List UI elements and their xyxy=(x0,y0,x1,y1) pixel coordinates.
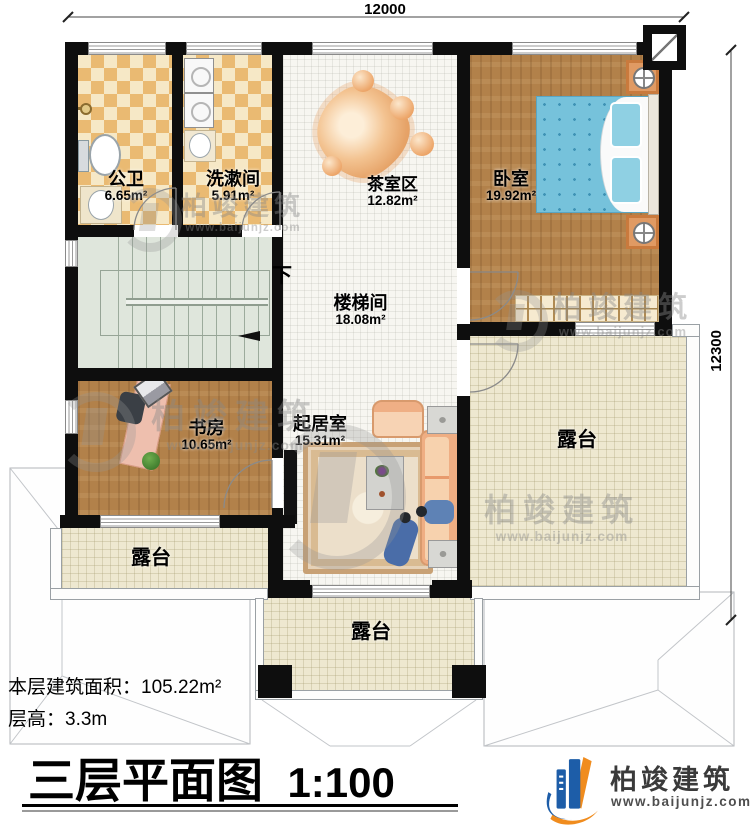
room-area: 12.82m² xyxy=(350,194,435,209)
floor-height-label: 层高： xyxy=(8,709,65,730)
terrace-label: 露台 xyxy=(332,622,410,644)
brand-logo: 柏竣建筑 www.baijunjz.com xyxy=(538,750,743,830)
drawing-scale: 1:100 xyxy=(287,759,394,806)
dimension-right: 12300 xyxy=(708,330,725,372)
floor-height-text: 层高：3.3m xyxy=(8,704,107,731)
room-name: 公卫 xyxy=(86,170,166,189)
terrace-label: 露台 xyxy=(112,548,190,570)
floorplan-canvas: 下 公卫 6.65m² 洗漱间 5.91m² 茶室区 12.82m² 卧室 19… xyxy=(0,0,750,835)
watermark: 柏竣建筑 www.baijunjz.com xyxy=(528,292,718,340)
floor-height-value: 3.3m xyxy=(65,709,107,730)
stair-rail xyxy=(126,298,268,306)
brand-name: 柏竣建筑 xyxy=(610,758,734,797)
title-underline-thin xyxy=(22,810,458,812)
building-area-label: 本层建筑面积： xyxy=(8,677,141,698)
room-label-stairwell: 楼梯间 18.08m² xyxy=(318,294,403,328)
room-label-tea-area: 茶室区 12.82m² xyxy=(350,176,435,209)
building-area-value: 105.22m² xyxy=(141,677,221,698)
building-area-text: 本层建筑面积：105.22m² xyxy=(8,672,221,699)
brand-website: www.baijunjz.com xyxy=(611,794,750,809)
brand-logo-icon xyxy=(538,752,604,828)
room-name: 洗漱间 xyxy=(188,170,278,189)
room-area: 18.08m² xyxy=(318,313,403,328)
watermark: 柏竣建筑 www.baijunjz.com xyxy=(452,492,672,544)
room-label-bedroom: 卧室 19.92m² xyxy=(472,170,550,204)
stair-direction-label: 下 xyxy=(272,259,292,288)
brand-glyph-icon xyxy=(268,424,406,570)
dimension-top: 12000 xyxy=(340,1,430,18)
room-area: 19.92m² xyxy=(472,189,550,204)
watermark: 柏竣建筑 www.baijunjz.com xyxy=(158,192,328,235)
terrace-label: 露台 xyxy=(538,430,616,452)
room-name: 楼梯间 xyxy=(318,294,403,313)
title-underline xyxy=(22,804,458,807)
room-name: 卧室 xyxy=(472,170,550,189)
stair-direction-arrow-icon xyxy=(238,331,260,341)
drawing-title-row: 三层平面图 1:100 xyxy=(28,742,395,811)
drawing-title: 三层平面图 xyxy=(28,754,263,807)
room-name: 茶室区 xyxy=(350,176,435,194)
